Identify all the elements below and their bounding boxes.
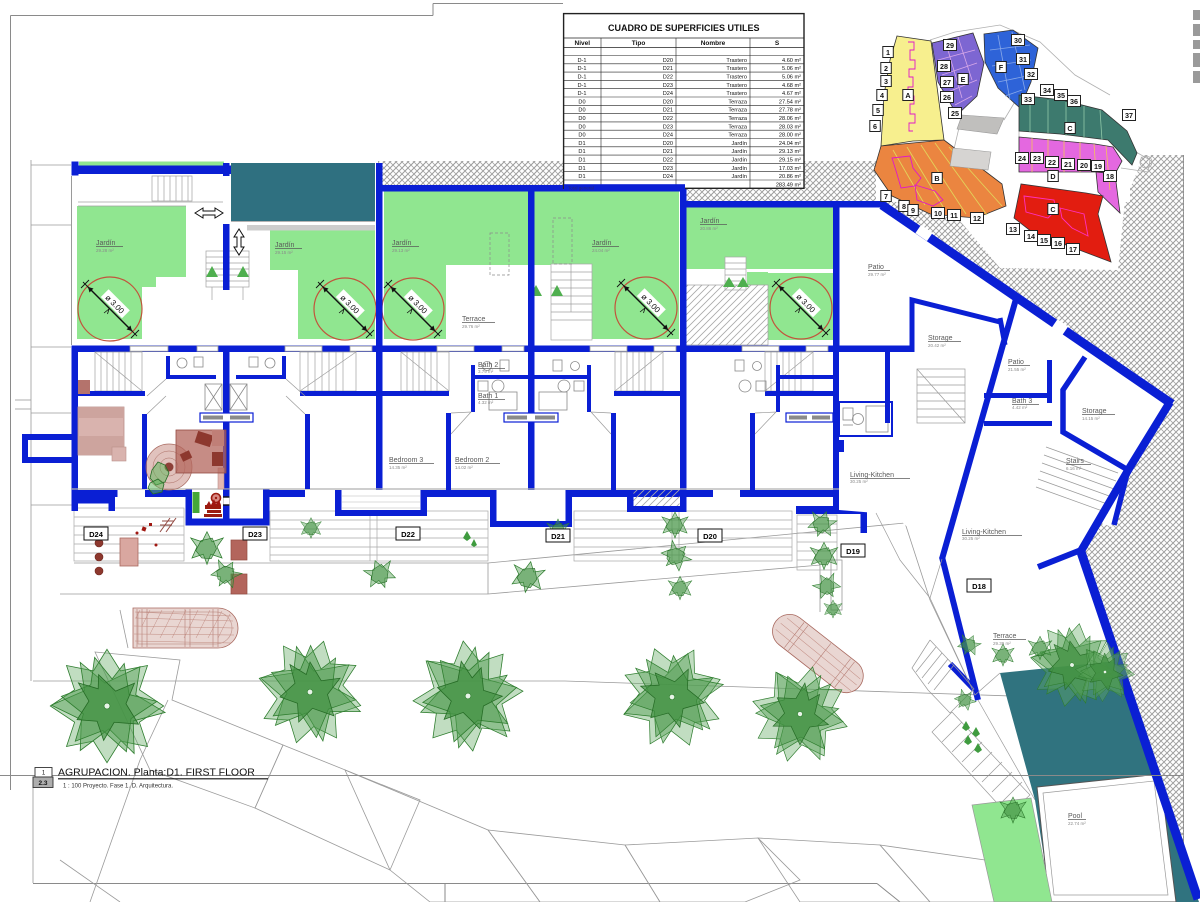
svg-text:C: C xyxy=(1050,205,1055,214)
svg-text:12: 12 xyxy=(973,214,981,223)
svg-text:20.86 m²: 20.86 m² xyxy=(700,226,718,231)
svg-text:4.42 m²: 4.42 m² xyxy=(1012,405,1028,410)
svg-text:14.35 m²: 14.35 m² xyxy=(389,465,407,470)
svg-text:29.77 m²: 29.77 m² xyxy=(868,272,886,277)
svg-text:Nombre: Nombre xyxy=(701,40,726,47)
svg-text:D24: D24 xyxy=(663,133,673,139)
svg-text:28.06 m²: 28.06 m² xyxy=(779,116,801,122)
svg-text:Jardín: Jardín xyxy=(731,166,747,172)
svg-text:Trastero: Trastero xyxy=(726,83,747,89)
svg-text:10: 10 xyxy=(934,209,942,218)
svg-text:22: 22 xyxy=(1048,158,1056,167)
svg-text:23: 23 xyxy=(1033,154,1041,163)
svg-text:29.28 m²: 29.28 m² xyxy=(96,248,114,253)
svg-text:25: 25 xyxy=(951,109,959,118)
svg-text:Living-Kitchen: Living-Kitchen xyxy=(850,472,894,479)
svg-text:14.02 m²: 14.02 m² xyxy=(455,465,473,470)
svg-text:Living-Kitchen: Living-Kitchen xyxy=(962,529,1006,536)
svg-text:D22: D22 xyxy=(663,158,673,164)
svg-text:D1: D1 xyxy=(578,166,585,172)
svg-text:2: 2 xyxy=(884,64,888,73)
svg-text:30.25 m²: 30.25 m² xyxy=(962,536,980,541)
svg-text:Storage: Storage xyxy=(1082,408,1107,415)
svg-text:29.39 m²: 29.39 m² xyxy=(993,641,1011,646)
svg-text:Jardín: Jardín xyxy=(96,240,116,247)
svg-text:D0: D0 xyxy=(578,116,585,122)
svg-text:D20: D20 xyxy=(703,532,717,541)
svg-text:D0: D0 xyxy=(578,124,585,130)
svg-text:2.3: 2.3 xyxy=(38,780,47,787)
svg-text:D21: D21 xyxy=(663,149,673,155)
svg-text:Jardín: Jardín xyxy=(700,218,720,225)
svg-text:28.03 m²: 28.03 m² xyxy=(779,124,801,130)
svg-text:Terrace: Terrace xyxy=(462,316,485,323)
svg-text:Stairs: Stairs xyxy=(1066,458,1084,465)
svg-text:20: 20 xyxy=(1080,161,1088,170)
svg-text:19: 19 xyxy=(1094,162,1102,171)
svg-text:27: 27 xyxy=(943,78,951,87)
svg-text:D1: D1 xyxy=(578,174,585,180)
svg-text:D22: D22 xyxy=(401,530,415,539)
svg-text:21: 21 xyxy=(1064,160,1072,169)
svg-text:Patio: Patio xyxy=(1008,359,1024,366)
svg-text:D22: D22 xyxy=(663,116,673,122)
svg-text:S: S xyxy=(775,40,780,47)
svg-text:5.06 m²: 5.06 m² xyxy=(782,75,801,81)
svg-text:17: 17 xyxy=(1069,245,1077,254)
svg-text:Jardín: Jardín xyxy=(731,158,747,164)
svg-text:D22: D22 xyxy=(663,75,673,81)
svg-text:D21: D21 xyxy=(663,108,673,114)
svg-text:Terraza: Terraza xyxy=(728,116,748,122)
svg-text:30.25 m²: 30.25 m² xyxy=(850,479,868,484)
svg-text:Tipo: Tipo xyxy=(632,40,646,47)
svg-text:Storage: Storage xyxy=(928,335,953,342)
svg-text:28: 28 xyxy=(940,62,948,71)
svg-text:21.55 m²: 21.55 m² xyxy=(1008,367,1026,372)
svg-text:D21: D21 xyxy=(551,532,565,541)
svg-text:3.79 m²: 3.79 m² xyxy=(478,369,494,374)
svg-text:Nivel: Nivel xyxy=(575,40,591,47)
svg-text:24.04 m²: 24.04 m² xyxy=(592,248,610,253)
svg-text:Jardín: Jardín xyxy=(731,141,747,147)
svg-text:14: 14 xyxy=(1027,232,1035,241)
svg-text:D20: D20 xyxy=(663,58,673,64)
svg-text:D0: D0 xyxy=(578,108,585,114)
svg-text:30: 30 xyxy=(1014,36,1022,45)
svg-text:Trastero: Trastero xyxy=(726,66,747,72)
svg-text:Jardín: Jardín xyxy=(392,240,412,247)
svg-text:D23: D23 xyxy=(663,166,673,172)
svg-text:27.78 m²: 27.78 m² xyxy=(779,108,801,114)
svg-text:Terraza: Terraza xyxy=(728,108,748,114)
svg-text:283.49 m²: 283.49 m² xyxy=(776,183,801,189)
svg-text:4: 4 xyxy=(880,91,884,100)
svg-text:D1: D1 xyxy=(578,158,585,164)
svg-text:1: 1 xyxy=(886,48,890,57)
svg-text:29.76 m²: 29.76 m² xyxy=(462,324,480,329)
svg-text:17.03 m²: 17.03 m² xyxy=(779,166,801,172)
svg-text:5: 5 xyxy=(876,106,880,115)
svg-text:28.00 m²: 28.00 m² xyxy=(779,133,801,139)
svg-text:9: 9 xyxy=(911,206,915,215)
svg-text:20.42 m²: 20.42 m² xyxy=(928,343,946,348)
svg-text:16: 16 xyxy=(1054,239,1062,248)
svg-text:Bedroom 2: Bedroom 2 xyxy=(455,457,489,464)
svg-text:AGRUPACION. Planta:D1. FIRST F: AGRUPACION. Planta:D1. FIRST FLOOR xyxy=(58,767,255,779)
svg-text:Terraza: Terraza xyxy=(728,133,748,139)
svg-text:D20: D20 xyxy=(663,99,673,105)
svg-text:D24: D24 xyxy=(89,530,104,539)
svg-text:Terrace: Terrace xyxy=(993,633,1016,640)
svg-text:18: 18 xyxy=(1106,172,1114,181)
svg-text:Trastero: Trastero xyxy=(726,75,747,81)
svg-text:Terraza: Terraza xyxy=(728,99,748,105)
svg-text:13: 13 xyxy=(1009,225,1017,234)
svg-text:Trastero: Trastero xyxy=(726,58,747,64)
svg-text:7: 7 xyxy=(884,192,888,201)
svg-text:A: A xyxy=(905,91,910,100)
svg-text:Jardín: Jardín xyxy=(731,149,747,155)
svg-text:D0: D0 xyxy=(578,99,585,105)
svg-text:5.06 m²: 5.06 m² xyxy=(782,66,801,72)
svg-text:36: 36 xyxy=(1070,97,1078,106)
svg-text:6.16 m²: 6.16 m² xyxy=(1066,466,1082,471)
svg-text:29.15 m²: 29.15 m² xyxy=(275,250,293,255)
svg-text:24: 24 xyxy=(1018,154,1026,163)
svg-text:4.60 m²: 4.60 m² xyxy=(782,58,801,64)
svg-text:D-1: D-1 xyxy=(577,83,586,89)
svg-text:31: 31 xyxy=(1019,55,1027,64)
svg-text:29.13 m²: 29.13 m² xyxy=(392,248,410,253)
svg-text:27.54 m²: 27.54 m² xyxy=(779,99,801,105)
svg-text:8: 8 xyxy=(902,202,906,211)
svg-text:3: 3 xyxy=(884,77,888,86)
svg-text:D23: D23 xyxy=(663,83,673,89)
svg-text:D19: D19 xyxy=(846,547,860,556)
svg-text:Pool: Pool xyxy=(1068,813,1082,820)
svg-text:Terraza: Terraza xyxy=(728,124,748,130)
svg-text:Total general: Total general xyxy=(568,186,594,191)
svg-text:CUADRO DE SUPERFICIES UTILES: CUADRO DE SUPERFICIES UTILES xyxy=(608,23,760,33)
svg-text:D24: D24 xyxy=(663,174,673,180)
svg-text:D23: D23 xyxy=(663,124,673,130)
svg-text:29.15 m²: 29.15 m² xyxy=(779,158,801,164)
svg-text:C: C xyxy=(1067,124,1072,133)
svg-text:D18: D18 xyxy=(972,582,986,591)
svg-text:E: E xyxy=(961,75,966,84)
svg-text:14.15 m²: 14.15 m² xyxy=(1082,416,1100,421)
svg-text:Jardín: Jardín xyxy=(275,242,295,249)
svg-text:24.04 m²: 24.04 m² xyxy=(779,141,801,147)
svg-text:D23: D23 xyxy=(248,530,262,539)
svg-text:11: 11 xyxy=(950,211,958,220)
svg-text:D24: D24 xyxy=(663,91,673,97)
svg-text:22.74 m²: 22.74 m² xyxy=(1068,821,1086,826)
svg-text:37: 37 xyxy=(1125,111,1133,120)
svg-text:6: 6 xyxy=(873,122,877,131)
svg-text:32: 32 xyxy=(1027,70,1035,79)
svg-text:20.86 m²: 20.86 m² xyxy=(779,174,801,180)
svg-text:4.68 m²: 4.68 m² xyxy=(782,83,801,89)
svg-text:B: B xyxy=(934,174,939,183)
svg-text:Jardín: Jardín xyxy=(731,174,747,180)
svg-text:D1: D1 xyxy=(578,141,585,147)
svg-text:Bath 2: Bath 2 xyxy=(478,362,498,369)
svg-text:Jardín: Jardín xyxy=(592,240,612,247)
svg-text:4.32 m²: 4.32 m² xyxy=(478,400,494,405)
svg-text:29.13 m²: 29.13 m² xyxy=(779,149,801,155)
svg-text:26: 26 xyxy=(943,93,951,102)
svg-text:D21: D21 xyxy=(663,66,673,72)
svg-text:D-1: D-1 xyxy=(577,75,586,81)
svg-text:D-1: D-1 xyxy=(577,91,586,97)
svg-text:15: 15 xyxy=(1040,236,1048,245)
svg-text:Bath 1: Bath 1 xyxy=(478,393,498,400)
svg-text:Patio: Patio xyxy=(868,264,884,271)
svg-text:D1: D1 xyxy=(578,149,585,155)
svg-text:Trastero: Trastero xyxy=(726,91,747,97)
svg-text:Bath 3: Bath 3 xyxy=(1012,398,1032,405)
svg-text:4.67 m²: 4.67 m² xyxy=(782,91,801,97)
svg-text:D-1: D-1 xyxy=(577,66,586,72)
svg-text:35: 35 xyxy=(1057,91,1065,100)
svg-text:D0: D0 xyxy=(578,133,585,139)
svg-text:33: 33 xyxy=(1024,95,1032,104)
svg-text:D-1: D-1 xyxy=(577,58,586,64)
svg-text:34: 34 xyxy=(1043,86,1051,95)
svg-text:29: 29 xyxy=(946,41,954,50)
svg-text:D: D xyxy=(1050,172,1055,181)
svg-text:Bedroom 3: Bedroom 3 xyxy=(389,457,423,464)
svg-text:F: F xyxy=(999,63,1004,72)
svg-text:D20: D20 xyxy=(663,141,673,147)
svg-text:1 : 100 Proyecto. Fase 1. D. A: 1 : 100 Proyecto. Fase 1. D. Arquitectur… xyxy=(63,784,173,790)
